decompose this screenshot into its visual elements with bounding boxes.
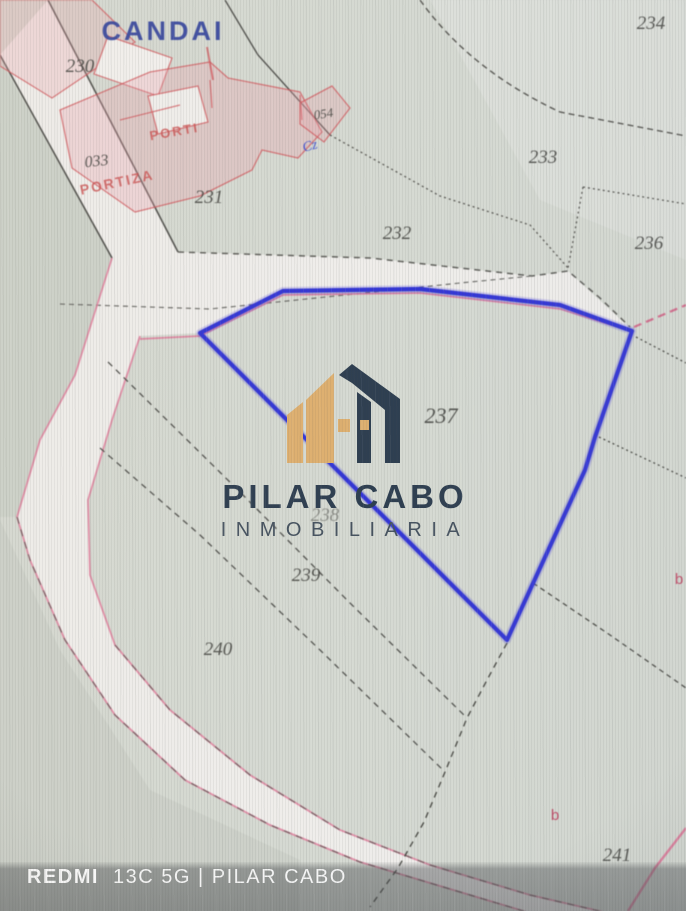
agency-logo: PILAR CABO INMOBILIARIA	[135, 362, 555, 542]
parcel-label-239: 239	[292, 565, 321, 586]
camera-watermark-caption: 13C 5G | PILAR CABO	[113, 866, 347, 888]
parcel-label-230: 230	[66, 56, 95, 77]
parcel-label-232: 232	[383, 223, 412, 244]
parcel-label-234: 234	[637, 13, 666, 34]
parcel-label-033: 033	[84, 152, 110, 171]
parcel-label-231: 231	[195, 187, 224, 208]
parcel-label-241: 241	[603, 845, 632, 866]
parcel-label-233: 233	[529, 147, 558, 168]
subparcel-label-b-south: b	[551, 807, 559, 824]
houses-logo-icon	[285, 362, 405, 464]
cadastral-map-photo: CANDAI 230 033 231 232 233 234 236 237 2…	[0, 0, 686, 911]
agency-subtitle: INMOBILIARIA	[135, 519, 555, 542]
camera-watermark-device: REDMI	[27, 866, 99, 888]
parcel-label-054: 054	[313, 105, 335, 123]
camera-watermark: REDMI 13C 5G | PILAR CABO	[27, 866, 347, 889]
place-label-candai: CANDAI	[102, 16, 225, 46]
parcel-label-236: 236	[635, 233, 664, 254]
agency-name: PILAR CABO	[135, 478, 555, 516]
subparcel-label-b-east: b	[675, 571, 683, 588]
parcel-label-240: 240	[204, 639, 233, 660]
